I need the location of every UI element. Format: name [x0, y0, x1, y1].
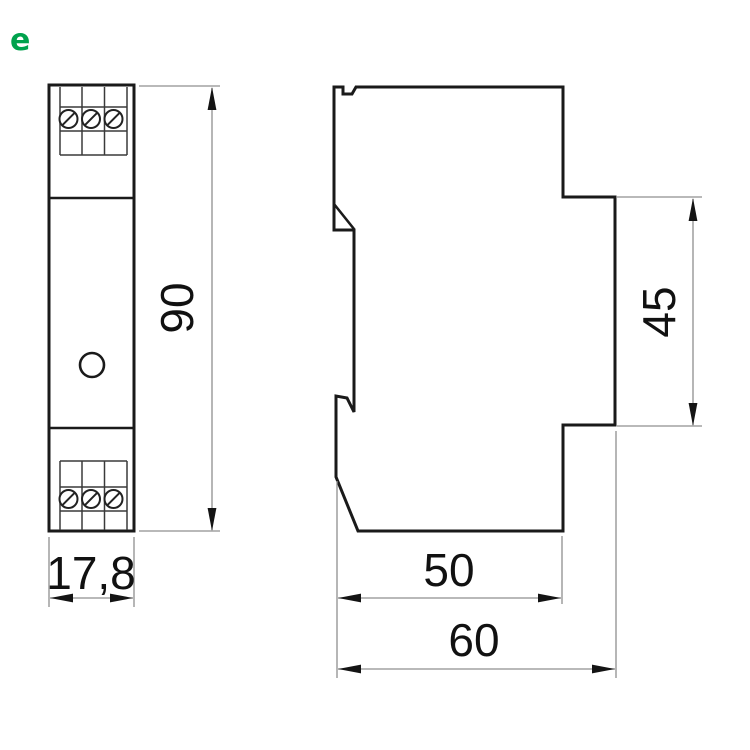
arrow-left-icon	[338, 665, 361, 674]
dimension-height-90: 90	[139, 86, 220, 531]
side-view	[334, 87, 615, 531]
dimension-label-rail-section: 45	[633, 286, 685, 337]
side-view-profile-outline	[334, 87, 615, 531]
brand-logo-e-icon: e	[10, 23, 30, 58]
arrow-right-icon	[538, 594, 561, 603]
screw-terminal-icon	[82, 110, 100, 128]
arrow-down-icon	[208, 508, 217, 531]
dimension-label-total-depth: 60	[448, 614, 499, 666]
dimension-width-17-8: 17,8	[46, 537, 136, 607]
arrow-left-icon	[338, 594, 361, 603]
drawing-canvas: e	[0, 0, 750, 750]
technical-drawing: e	[0, 0, 750, 750]
screw-terminal-icon	[105, 110, 123, 128]
dimension-label-width: 17,8	[46, 547, 136, 599]
arrow-right-icon	[592, 665, 615, 674]
dimension-rail-45: 45	[617, 197, 702, 426]
led-indicator-hole	[80, 353, 104, 377]
dimension-label-body-depth: 50	[423, 544, 474, 596]
screw-terminal-icon	[60, 490, 78, 508]
dimension-label-height: 90	[151, 282, 203, 333]
arrow-down-icon	[689, 403, 698, 426]
screw-terminal-icon	[105, 490, 123, 508]
arrow-up-icon	[208, 87, 217, 110]
screw-terminal-icon	[82, 490, 100, 508]
arrow-up-icon	[689, 198, 698, 221]
front-view	[49, 85, 134, 531]
front-view-body-outline	[49, 85, 134, 531]
screw-terminal-icon	[60, 110, 78, 128]
